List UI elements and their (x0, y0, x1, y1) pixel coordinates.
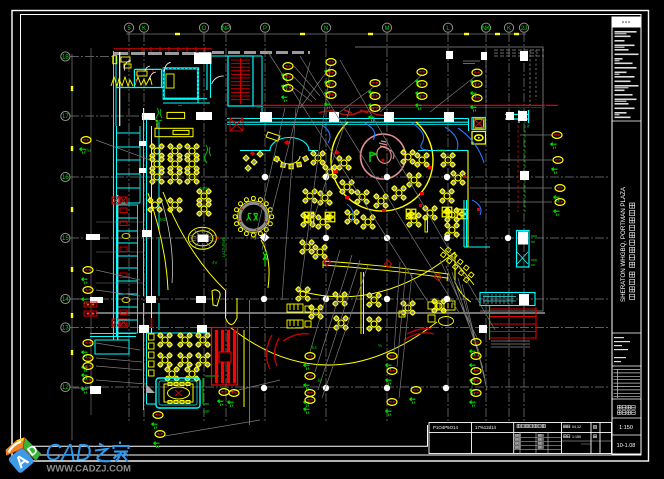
svg-text:P1O4P5O14: P1O4P5O14 (433, 425, 458, 430)
svg-text:10-1.08: 10-1.08 (617, 443, 636, 449)
svg-text:16: 16 (62, 175, 69, 181)
svg-text:04.12: 04.12 (572, 425, 581, 429)
svg-text:4V: 4V (212, 260, 218, 265)
svg-text:M#: M# (203, 409, 210, 414)
svg-text:N: N (324, 26, 328, 32)
svg-text:O: O (202, 26, 207, 32)
svg-text:1:150: 1:150 (572, 435, 581, 439)
svg-text:NP: NP (222, 26, 230, 32)
svg-text:P: P (263, 26, 267, 32)
svg-text:M%F4T#T: M%F4T#T (221, 238, 226, 258)
svg-text:13: 13 (62, 326, 69, 332)
svg-text:12: 12 (62, 385, 69, 391)
svg-text:7h4: 7h4 (84, 148, 92, 153)
svg-text:CAD: CAD (46, 440, 92, 467)
svg-text:15: 15 (62, 236, 69, 242)
svg-text:M: M (385, 26, 390, 32)
svg-text:NK: NK (482, 26, 490, 32)
svg-text:M#k: M#k (200, 186, 209, 191)
svg-text:k4: k4 (312, 345, 317, 350)
svg-text:WWW.CADZJ.COM: WWW.CADZJ.COM (47, 464, 132, 474)
svg-text:K: K (507, 26, 511, 32)
svg-text:K: K (142, 26, 146, 32)
svg-text:M2: M2 (160, 217, 167, 222)
svg-text:17%12d14: 17%12d14 (475, 425, 497, 430)
svg-text:SHERATON WHGBQ, PORTMAN PLAZA: SHERATON WHGBQ, PORTMAN PLAZA (620, 186, 627, 302)
svg-text:2J: 2J (521, 26, 527, 32)
svg-text:18: 18 (62, 55, 69, 61)
svg-text:1:150: 1:150 (619, 425, 633, 431)
svg-text:14: 14 (62, 297, 69, 303)
svg-text:%: % (378, 343, 382, 348)
svg-text:#4%: #4% (437, 148, 446, 153)
svg-text:17: 17 (62, 114, 69, 120)
